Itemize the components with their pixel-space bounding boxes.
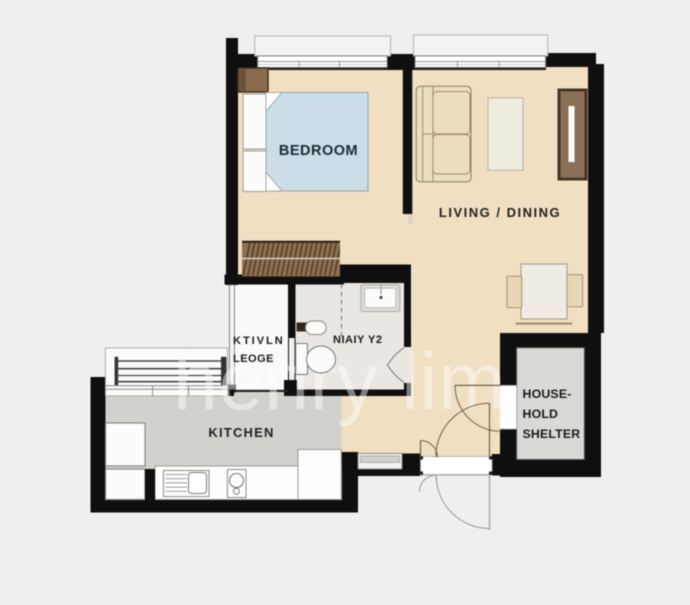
svg-text:LEOGE: LEOGE: [233, 353, 274, 365]
svg-text:BEDROOM: BEDROOM: [279, 143, 358, 159]
svg-text:HOLD: HOLD: [523, 407, 559, 421]
svg-text:HOUSE-: HOUSE-: [523, 387, 572, 401]
svg-text:LIVING / DINING: LIVING / DINING: [439, 205, 561, 220]
svg-text:SHELTER: SHELTER: [523, 427, 581, 441]
svg-text:KITCHEN: KITCHEN: [208, 425, 274, 440]
svg-text:henry lim: henry lim: [173, 337, 506, 427]
svg-text:NIAIY Y2: NIAIY Y2: [333, 334, 382, 346]
svg-text:KTIVLN: KTIVLN: [233, 335, 285, 347]
